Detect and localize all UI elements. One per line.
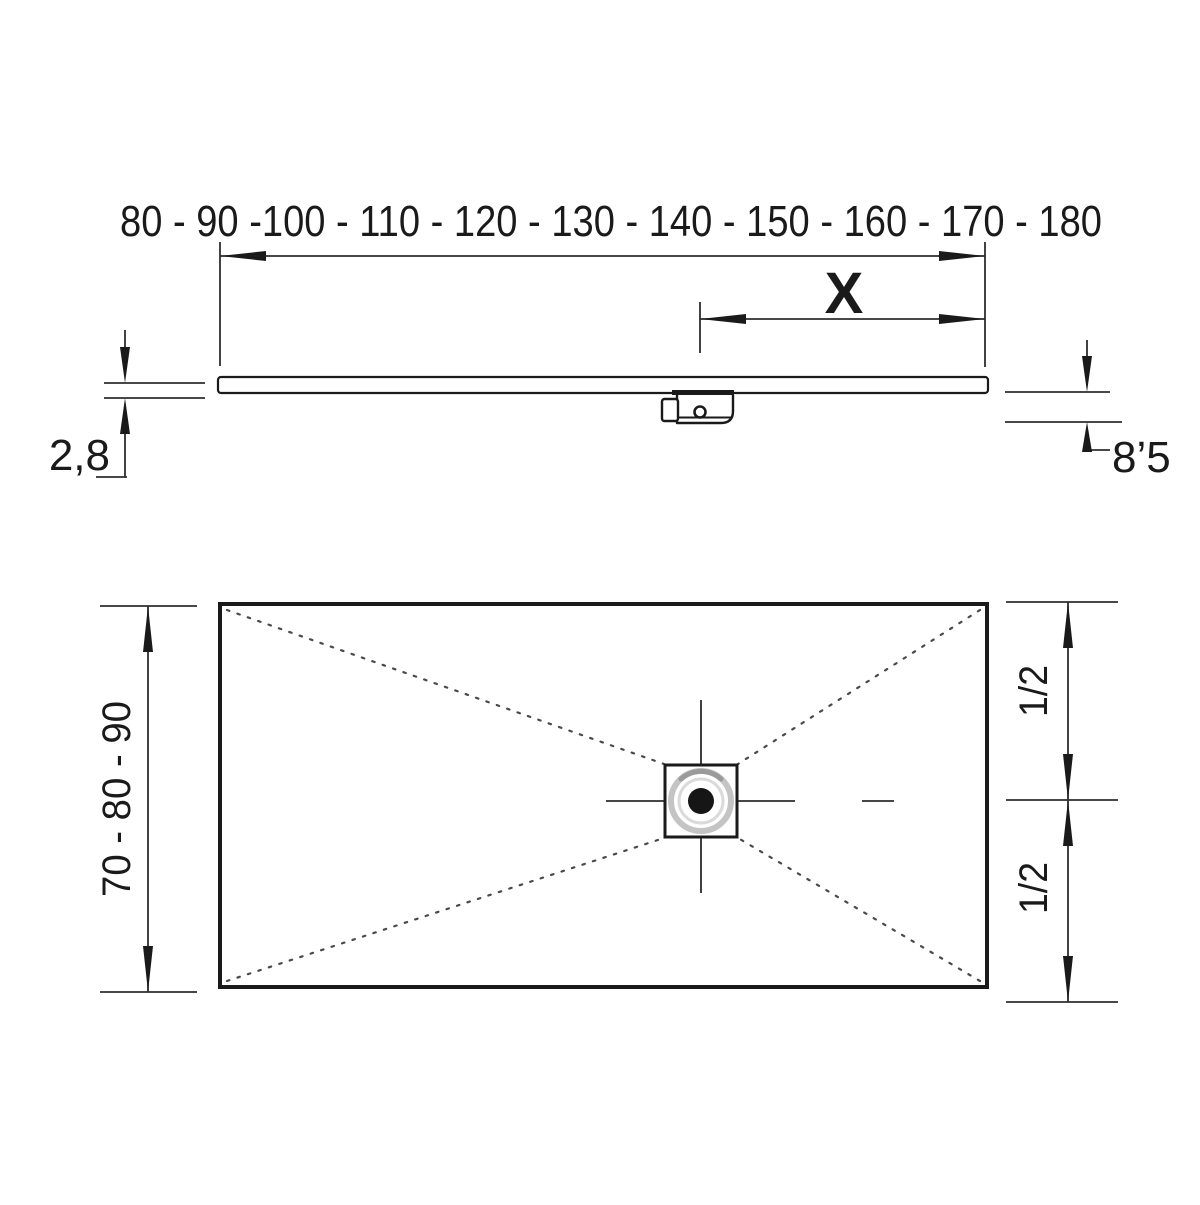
- total-height-dimension: [1005, 340, 1122, 450]
- arrowhead-down: [120, 347, 130, 383]
- arrowhead-up: [1063, 800, 1073, 846]
- drain-flange: [672, 390, 734, 395]
- half-width-top-label: 1/2: [1012, 665, 1056, 717]
- arrowhead-up: [120, 398, 130, 434]
- arrowhead-down: [1082, 356, 1092, 392]
- drain-plan-view: [665, 765, 737, 837]
- half-width-dimensions: [1006, 602, 1118, 1002]
- overall-length-dimension: [220, 242, 985, 367]
- drain-hole: [688, 788, 714, 814]
- half-width-bottom-label: 1/2: [1012, 862, 1056, 914]
- thickness-label: 2,8: [49, 431, 110, 480]
- arrowhead-right: [939, 251, 985, 261]
- drain-outlet-stub: [662, 399, 678, 421]
- arrowhead-up: [1082, 422, 1092, 452]
- arrowhead-down: [143, 946, 153, 992]
- technical-drawing-page: 80 - 90 -100 - 110 - 120 - 130 - 140 - 1…: [0, 0, 1200, 1200]
- shower-tray-drawing: 80 - 90 -100 - 110 - 120 - 130 - 140 - 1…: [0, 0, 1200, 1200]
- length-options-label: 80 - 90 -100 - 110 - 120 - 130 - 140 - 1…: [120, 197, 1102, 246]
- tray-side-profile: [218, 377, 988, 393]
- arrowhead-down: [1063, 754, 1073, 800]
- width-options-label: 70 - 80 - 90: [95, 701, 139, 897]
- arrowhead-left: [700, 314, 746, 324]
- arrowhead-right: [939, 314, 985, 324]
- x-dimension-label: X: [825, 261, 864, 326]
- arrowhead-up: [143, 606, 153, 652]
- arrowhead-down: [1063, 956, 1073, 1002]
- arrowhead-up: [1063, 602, 1073, 648]
- total-height-label: 8’5: [1112, 433, 1171, 482]
- drain-trap-side-view: [662, 390, 734, 423]
- tray-plan-outline: [220, 604, 987, 987]
- thickness-dimension: [96, 330, 205, 477]
- arrowhead-left: [220, 251, 266, 261]
- drain-trap-screw: [695, 407, 706, 418]
